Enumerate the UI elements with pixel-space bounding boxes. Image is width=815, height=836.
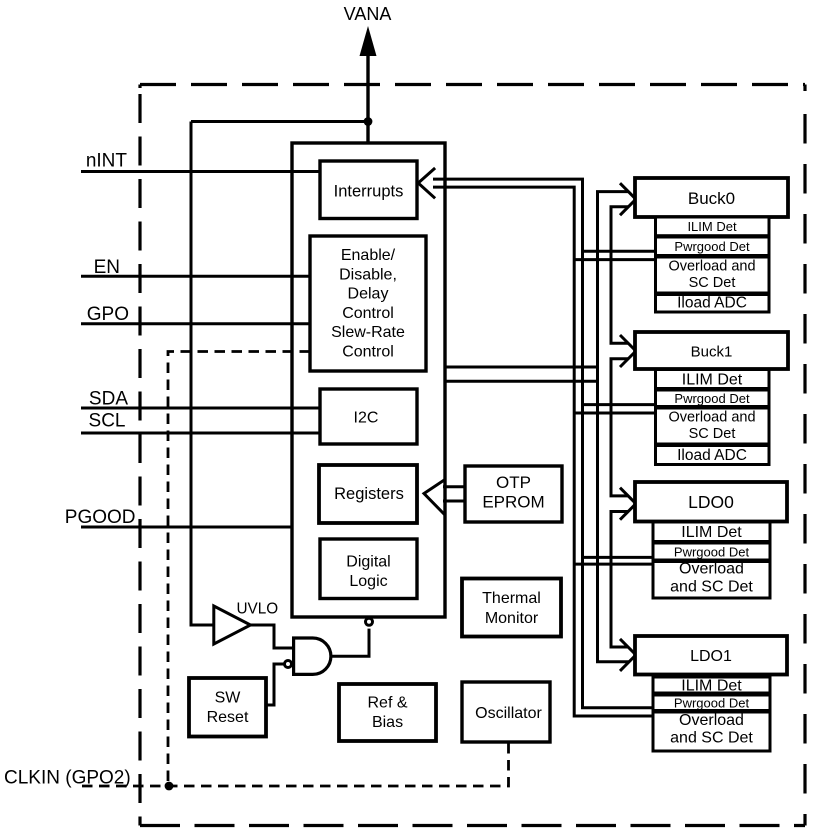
svg-text:OTP: OTP [496,473,531,492]
svg-text:VANA: VANA [344,4,392,24]
svg-text:Registers: Registers [334,485,404,503]
svg-text:Pwrgood Det: Pwrgood Det [674,239,750,254]
svg-text:SC Det: SC Det [689,426,736,442]
svg-text:ILIM Det: ILIM Det [681,678,742,695]
svg-text:I2C: I2C [354,410,379,427]
svg-text:ILIM Det: ILIM Det [682,372,743,389]
svg-text:Overload and: Overload and [668,410,755,426]
svg-text:Digital: Digital [346,554,390,571]
svg-text:Pwrgood Det: Pwrgood Det [674,544,750,559]
svg-text:EN: EN [94,257,120,278]
svg-text:Disable,: Disable, [339,266,397,283]
svg-text:Iload ADC: Iload ADC [677,295,747,312]
svg-text:LDO1: LDO1 [690,648,732,665]
svg-text:Delay: Delay [348,286,389,303]
svg-text:Oscillator: Oscillator [475,705,542,722]
svg-text:CLKIN (GPO2): CLKIN (GPO2) [4,768,131,789]
svg-text:ILIM Det: ILIM Det [681,524,742,541]
svg-text:PGOOD: PGOOD [65,507,136,528]
svg-text:Iload ADC: Iload ADC [677,447,747,464]
svg-text:Monitor: Monitor [485,610,539,627]
svg-text:UVLO: UVLO [237,600,279,617]
svg-text:Ref &: Ref & [367,695,407,712]
svg-text:SC Det: SC Det [689,275,736,291]
svg-text:Thermal: Thermal [482,590,541,607]
svg-text:Overload and: Overload and [668,259,755,275]
svg-text:Enable/: Enable/ [341,247,396,264]
svg-text:Slew-Rate: Slew-Rate [331,324,405,341]
svg-text:Control: Control [342,305,394,322]
svg-text:Buck1: Buck1 [691,343,733,360]
svg-text:SW: SW [215,690,242,707]
svg-text:ILIM Det: ILIM Det [687,219,737,234]
svg-text:LDO0: LDO0 [688,492,734,512]
svg-text:Pwrgood Det: Pwrgood Det [674,391,750,406]
svg-text:Reset: Reset [207,709,249,726]
svg-text:and SC Det: and SC Det [670,730,753,747]
svg-text:GPO: GPO [87,304,129,325]
svg-text:Overload: Overload [679,560,744,577]
svg-text:SCL: SCL [89,411,126,432]
svg-text:Overload: Overload [679,712,744,729]
svg-text:nINT: nINT [86,151,128,172]
svg-text:Pwrgood Det: Pwrgood Det [674,696,750,711]
svg-text:SDA: SDA [89,389,128,410]
svg-text:Logic: Logic [349,573,387,590]
svg-text:Buck0: Buck0 [688,189,735,208]
svg-text:EPROM: EPROM [482,493,544,512]
svg-text:Interrupts: Interrupts [334,183,404,201]
svg-text:and SC Det: and SC Det [670,578,753,595]
svg-text:Control: Control [342,344,394,361]
svg-text:Bias: Bias [372,714,403,731]
